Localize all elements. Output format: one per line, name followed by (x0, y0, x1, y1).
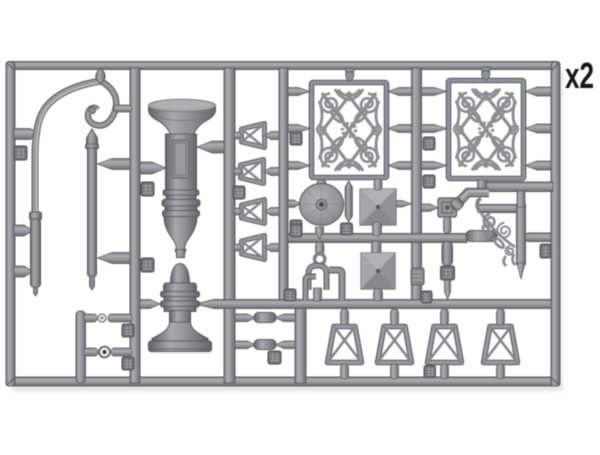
svg-text:x2: x2 (565, 55, 594, 96)
